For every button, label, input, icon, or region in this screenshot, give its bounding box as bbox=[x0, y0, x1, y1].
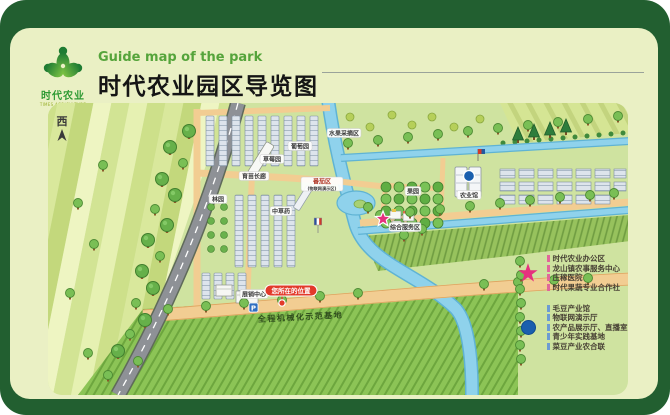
label-exhibition: 展销中心 bbox=[240, 290, 268, 299]
svg-text:(物联网演示区): (物联网演示区) bbox=[308, 185, 337, 192]
blue-dot-marker bbox=[464, 171, 475, 182]
svg-text:农业馆: 农业馆 bbox=[459, 192, 478, 200]
label-nursery: 育苗长廊 bbox=[239, 172, 269, 181]
label-grape: 葡萄园 bbox=[288, 142, 312, 151]
header-titles: Guide map of the park 时代农业园区导览图 bbox=[98, 50, 319, 101]
legend-item: 菜豆产业农合联 bbox=[547, 342, 628, 352]
svg-text:您所在的位置: 您所在的位置 bbox=[272, 286, 312, 295]
label-tomato: 番茄区 (物联网演示区) bbox=[301, 177, 343, 192]
label-grove: 林园 bbox=[209, 195, 227, 204]
svg-text:番茄区: 番茄区 bbox=[312, 178, 331, 186]
svg-text:林园: 林园 bbox=[212, 196, 224, 204]
star-legend-icon bbox=[518, 263, 538, 283]
label-orchard: 果园 bbox=[405, 187, 421, 196]
legend-star-group: 时代农业办公区 龙山镇农事服务中心 庄稼医院 时代果蔬专业合作社 bbox=[516, 254, 660, 292]
dot-legend-icon bbox=[521, 320, 536, 335]
svg-text:育苗长廊: 育苗长廊 bbox=[242, 173, 266, 181]
map-legend: 时代农业办公区 龙山镇农事服务中心 庄稼医院 时代果蔬专业合作社 毛豆产业馆 物… bbox=[516, 254, 660, 362]
svg-text:果园: 果园 bbox=[406, 188, 419, 196]
screenshot: 时代农业 TIMES AGRICULTURE Guide map of the … bbox=[0, 0, 670, 415]
legend-item: 时代果蔬专业合作社 bbox=[547, 283, 620, 293]
svg-text:水果采摘区: 水果采摘区 bbox=[329, 130, 359, 138]
label-service: 综合服务区 bbox=[389, 223, 421, 232]
subtitle-en: Guide map of the park bbox=[98, 50, 319, 65]
svg-text:西: 西 bbox=[57, 115, 68, 128]
label-herbs: 中草药 bbox=[270, 207, 292, 216]
header-divider bbox=[322, 72, 644, 73]
legend-dot-group: 毛豆产业馆 物联网演示厅 农产品展示厅、直播室 青少年实践基地 菜豆产业农合联 bbox=[516, 303, 660, 351]
svg-text:中草药: 中草药 bbox=[272, 208, 290, 216]
logo-name: 时代农业 bbox=[34, 87, 92, 102]
svg-text:P: P bbox=[251, 304, 256, 312]
page-title: 时代农业园区导览图 bbox=[98, 67, 319, 101]
parking-sign: P bbox=[249, 303, 258, 312]
logo-emblem bbox=[38, 44, 88, 82]
svg-text:葡萄园: 葡萄园 bbox=[290, 143, 309, 151]
label-strawberry: 草莓园 bbox=[260, 155, 284, 164]
label-agri-hall: 农业馆 bbox=[457, 191, 481, 200]
label-fruit-picking: 水果采摘区 bbox=[327, 129, 361, 138]
map-card: 时代农业 TIMES AGRICULTURE Guide map of the … bbox=[10, 28, 658, 399]
svg-text:展销中心: 展销中心 bbox=[242, 291, 266, 299]
svg-text:综合服务区: 综合服务区 bbox=[390, 224, 420, 232]
svg-text:草莓园: 草莓园 bbox=[263, 156, 281, 164]
park-logo: 时代农业 TIMES AGRICULTURE bbox=[34, 44, 92, 107]
